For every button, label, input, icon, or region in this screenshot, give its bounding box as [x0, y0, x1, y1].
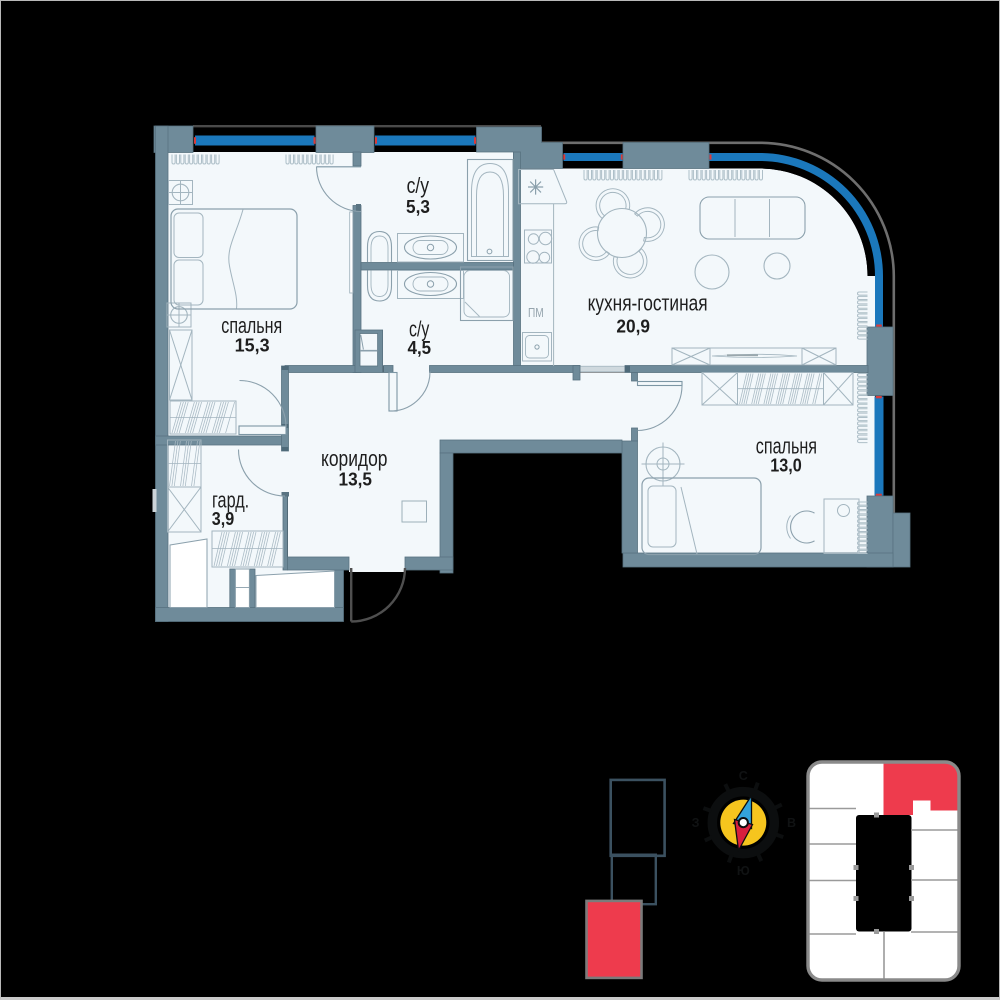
svg-text:13,5: 13,5 [339, 469, 373, 490]
svg-text:ПМ: ПМ [528, 305, 544, 320]
svg-text:3,9: 3,9 [212, 508, 234, 529]
svg-text:С: С [739, 769, 748, 783]
svg-text:4,5: 4,5 [408, 337, 432, 358]
svg-text:коридор: коридор [321, 446, 388, 471]
svg-text:Ю: Ю [737, 864, 750, 878]
svg-text:с/у: с/у [407, 173, 430, 198]
svg-text:13,0: 13,0 [770, 455, 802, 476]
svg-text:20,9: 20,9 [616, 316, 650, 337]
svg-text:В: В [787, 816, 796, 830]
svg-text:З: З [692, 816, 700, 830]
svg-text:5,3: 5,3 [406, 196, 430, 217]
svg-text:15,3: 15,3 [235, 335, 270, 356]
svg-text:кухня-гостиная: кухня-гостиная [588, 290, 708, 315]
